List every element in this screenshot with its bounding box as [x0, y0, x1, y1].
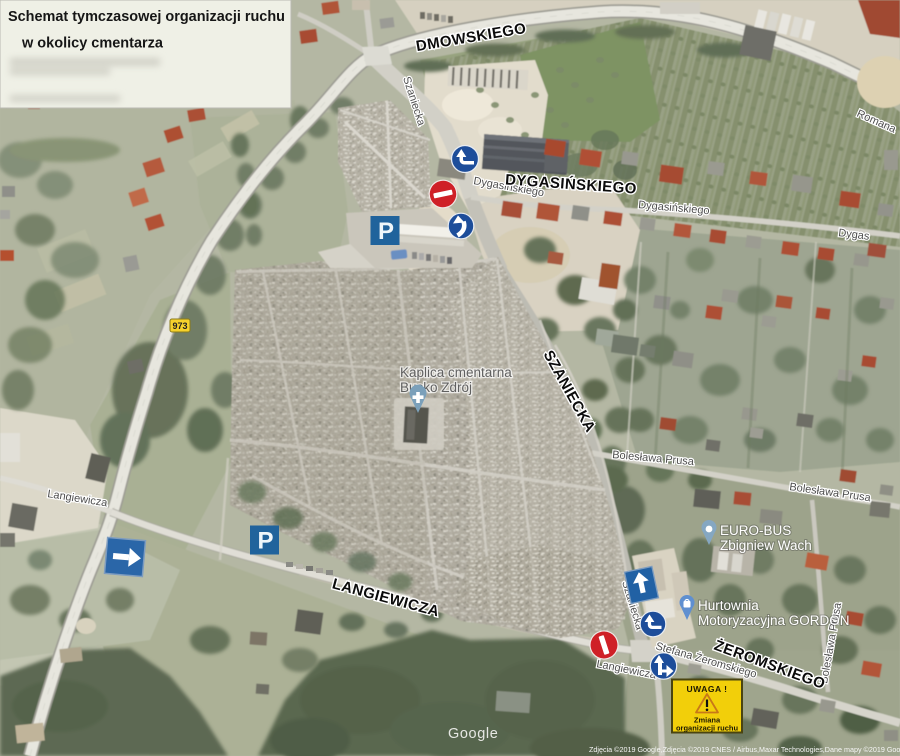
svg-text:Zbigniew Wach: Zbigniew Wach	[720, 538, 812, 553]
svg-text:Google: Google	[448, 726, 498, 742]
svg-text:P: P	[258, 528, 274, 555]
svg-text:Schemat tymczasowej organizacj: Schemat tymczasowej organizacji ruchu	[8, 9, 285, 25]
svg-text:Motoryzacyjna GORDON: Motoryzacyjna GORDON	[698, 613, 850, 628]
svg-text:EURO-BUS: EURO-BUS	[720, 523, 791, 538]
svg-text:Kaplica cmentarna: Kaplica cmentarna	[400, 365, 512, 380]
svg-text:P: P	[378, 218, 394, 245]
svg-text:Zdjęcia ©2019 Google,Zdjęcia ©: Zdjęcia ©2019 Google,Zdjęcia ©2019 CNES …	[589, 745, 900, 754]
svg-text:w okolicy cmentarza: w okolicy cmentarza	[21, 36, 164, 52]
svg-text:organizacji ruchu: organizacji ruchu	[676, 724, 739, 733]
svg-text:Hurtownia: Hurtownia	[698, 598, 759, 613]
svg-text:UWAGA !: UWAGA !	[687, 684, 728, 694]
svg-text:973: 973	[172, 321, 187, 331]
